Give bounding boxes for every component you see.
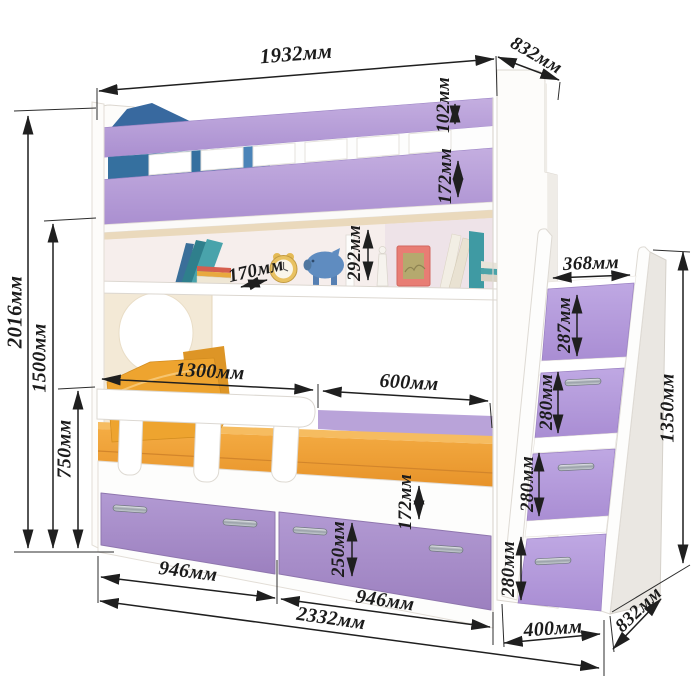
dim-step-second: 280мм — [536, 374, 558, 430]
bunk-bed-illustration — [0, 0, 700, 700]
dim-step-width: 368мм — [563, 252, 620, 276]
dim-rail-upper: 102мм — [433, 77, 455, 133]
dim-frame-band: 172мм — [395, 474, 417, 530]
dim-height-lower: 750мм — [54, 420, 77, 479]
dim-rail-lower: 172мм — [435, 148, 457, 204]
dim-step-fourth: 280мм — [498, 541, 520, 597]
bed-frame — [92, 70, 558, 628]
dim-step-top: 287мм — [554, 297, 576, 353]
picture-frame — [397, 246, 430, 286]
dim-step-third: 280мм — [517, 456, 539, 512]
dim-stairs-width: 400мм — [523, 615, 583, 642]
guard-rail — [97, 389, 315, 483]
dim-stairs-height: 1350мм — [657, 373, 680, 442]
dim-drawer-height: 250мм — [328, 521, 350, 577]
dim-shelf-height: 292мм — [344, 225, 366, 281]
dim-height-upper: 1500мм — [29, 323, 52, 392]
dim-guard-length: 1300мм — [175, 359, 245, 386]
step-3 — [527, 449, 615, 521]
step-4 — [518, 534, 606, 611]
dim-height-total: 2016мм — [3, 276, 28, 349]
bunk-bed-dimension-drawing: 1932мм 832мм 102мм 172мм 292мм 170мм 201… — [0, 0, 700, 700]
dim-open-length: 600мм — [379, 370, 439, 397]
book-stack-right — [481, 261, 497, 282]
